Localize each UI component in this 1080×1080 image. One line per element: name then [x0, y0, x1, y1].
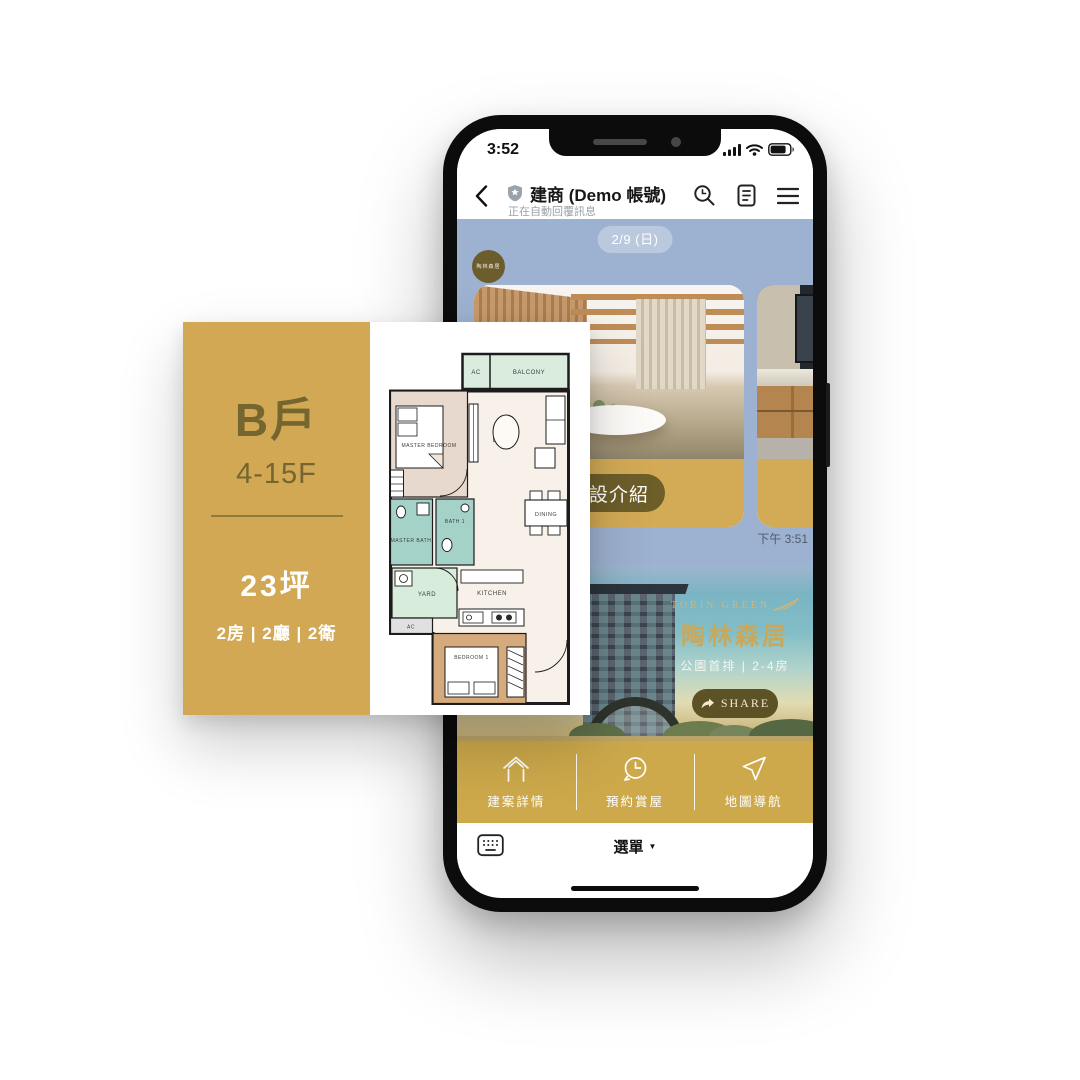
- brand-name-en: TORIN GREEN: [671, 600, 770, 611]
- floorplan-drawing: AC BALCONY MASTER BEDROOM LIVING: [389, 352, 570, 709]
- date-badge: 2/9 (日): [598, 226, 673, 253]
- avatar-logo-text: 陶林森居: [476, 263, 500, 270]
- message-timestamp: 下午 3:51: [757, 530, 808, 547]
- notch: [549, 129, 721, 156]
- kitchen-photo: [757, 285, 813, 459]
- promo-text-block: TORIN GREEN 陶林森居 公園首排 | 2-4房 SHARE: [665, 598, 805, 718]
- house-icon: [500, 754, 532, 784]
- power-button: [826, 383, 830, 467]
- clock-reserve-icon: [619, 754, 651, 784]
- svg-text:BEDROOM 1: BEDROOM 1: [454, 655, 489, 661]
- floorplan-card: B戶 4-15F 23坪 2房 | 2廳 | 2衛 AC BALCONY MAS…: [183, 322, 590, 715]
- avatar[interactable]: 陶林森居: [472, 250, 505, 283]
- leaf-swoosh-icon: [773, 598, 799, 612]
- share-button[interactable]: SHARE: [692, 689, 778, 718]
- share-arrow-icon: [700, 698, 715, 710]
- status-bar: 3:52: [457, 129, 813, 173]
- brand-name-zh: 陶林森居: [665, 616, 805, 651]
- rich-menu-item-project-details[interactable]: 建案詳情: [457, 741, 576, 823]
- note-icon[interactable]: [736, 184, 757, 207]
- svg-text:AC: AC: [471, 370, 481, 376]
- front-camera: [671, 137, 681, 147]
- svg-text:MASTER BATH: MASTER BATH: [391, 538, 432, 544]
- auto-reply-status: 正在自動回覆訊息: [508, 203, 596, 219]
- promo-tagline: 公園首排 | 2-4房: [665, 657, 805, 674]
- search-icon[interactable]: [693, 184, 716, 207]
- svg-text:BATH 1: BATH 1: [445, 519, 465, 525]
- signal-icon: [723, 144, 741, 156]
- hamburger-menu-icon[interactable]: [777, 187, 799, 205]
- back-icon[interactable]: [475, 185, 488, 207]
- carousel-card-kitchen[interactable]: [757, 285, 813, 527]
- unit-name: B戶: [235, 384, 318, 450]
- svg-text:MASTER BEDROOM: MASTER BEDROOM: [401, 443, 456, 449]
- rich-menu-item-map-navigation[interactable]: 地圖導航: [694, 741, 813, 823]
- shield-badge-icon: [507, 184, 523, 202]
- rich-menu: 建案詳情 預約賞屋 地圖導航: [457, 741, 813, 823]
- keyboard-icon[interactable]: [477, 834, 504, 857]
- home-indicator[interactable]: [571, 886, 699, 891]
- clock-time: 3:52: [487, 141, 519, 159]
- chevron-down-icon: ▼: [649, 842, 657, 851]
- speaker-slot: [593, 139, 647, 145]
- menu-toggle[interactable]: 選單 ▼: [614, 836, 657, 857]
- chat-header: 建商 (Demo 帳號) 正在自動回覆訊息: [457, 173, 813, 219]
- share-label: SHARE: [721, 696, 770, 711]
- svg-text:BALCONY: BALCONY: [513, 370, 545, 376]
- unit-info-panel: B戶 4-15F 23坪 2房 | 2廳 | 2衛: [183, 322, 370, 715]
- svg-text:KITCHEN: KITCHEN: [477, 591, 507, 597]
- floorplan-drawing-area: AC BALCONY MASTER BEDROOM LIVING: [370, 322, 590, 715]
- unit-area: 23坪: [240, 561, 312, 605]
- svg-text:AC: AC: [407, 625, 415, 631]
- unit-layout: 2房 | 2廳 | 2衛: [217, 619, 337, 644]
- navigation-arrow-icon: [738, 754, 770, 784]
- unit-floors: 4-15F: [236, 458, 317, 491]
- rich-menu-item-book-viewing[interactable]: 預約賞屋: [576, 741, 695, 823]
- input-bar: 選單 ▼: [457, 823, 813, 869]
- wifi-icon: [746, 144, 763, 156]
- card-action-area: [757, 459, 813, 527]
- svg-text:DINING: DINING: [535, 512, 557, 518]
- svg-text:YARD: YARD: [418, 592, 436, 598]
- battery-icon: [768, 143, 795, 156]
- divider: [211, 515, 343, 517]
